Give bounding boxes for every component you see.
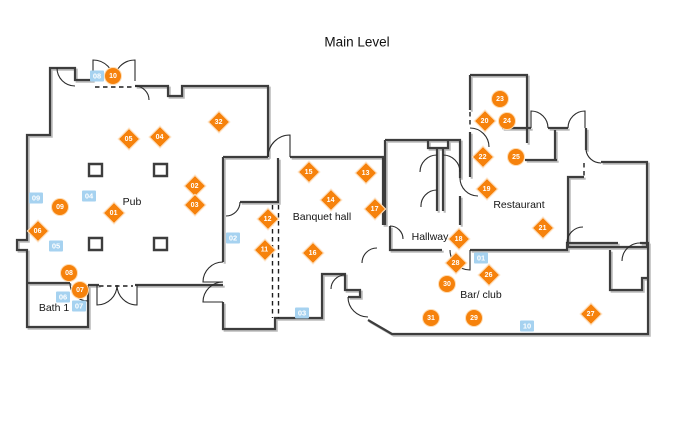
marker-label: 20 (481, 117, 489, 124)
marker-label: 01 (110, 209, 118, 216)
room-label-bar-club: Bar/ club (460, 289, 501, 301)
marker-label: 10 (523, 322, 531, 330)
marker-label: 29 (470, 315, 478, 322)
marker-label: 15 (305, 168, 313, 175)
marker-label: 07 (76, 287, 84, 294)
marker-label: 28 (452, 259, 460, 266)
marker-label: 02 (229, 234, 237, 242)
marker-label: 18 (455, 235, 463, 242)
device-marker-circle-29[interactable]: 29 (465, 309, 483, 327)
marker-label: 02 (191, 182, 199, 189)
marker-label: 22 (479, 153, 487, 160)
device-marker-square-02[interactable]: 02 (226, 233, 240, 244)
page-title: Main Level (324, 35, 389, 50)
marker-label: 31 (427, 315, 435, 322)
marker-label: 01 (477, 254, 485, 262)
device-marker-circle-30[interactable]: 30 (438, 275, 456, 293)
marker-label: 25 (512, 154, 520, 161)
marker-label: 26 (485, 271, 493, 278)
marker-label: 09 (56, 204, 64, 211)
room-label-bath-1: Bath 1 (39, 302, 69, 314)
device-marker-circle-23[interactable]: 23 (491, 90, 509, 108)
marker-label: 27 (587, 310, 595, 317)
device-marker-square-06[interactable]: 06 (56, 292, 70, 303)
room-label-hallway: Hallway (412, 231, 449, 243)
device-marker-square-05[interactable]: 05 (49, 241, 63, 252)
room-label-banquet-hall: Banquet hall (293, 211, 351, 223)
device-marker-square-01[interactable]: 01 (474, 253, 488, 264)
floorplan-canvas: Main Level PubBath 1Banquet hallHallwayR… (0, 0, 682, 421)
marker-label: 16 (309, 249, 317, 256)
marker-label: 04 (156, 133, 164, 140)
marker-label: 30 (443, 281, 451, 288)
marker-label: 08 (65, 270, 73, 277)
device-marker-square-03[interactable]: 03 (295, 308, 309, 319)
device-marker-circle-25[interactable]: 25 (507, 148, 525, 166)
marker-label: 06 (59, 293, 67, 301)
device-marker-square-04[interactable]: 04 (82, 191, 96, 202)
marker-label: 07 (75, 302, 83, 310)
device-marker-circle-31[interactable]: 31 (422, 309, 440, 327)
device-marker-circle-09[interactable]: 09 (51, 198, 69, 216)
marker-label: 14 (327, 196, 335, 203)
device-marker-circle-07[interactable]: 07 (71, 281, 89, 299)
marker-label: 17 (371, 205, 379, 212)
room-label-restaurant: Restaurant (493, 199, 544, 211)
marker-label: 08 (93, 72, 101, 80)
marker-label: 03 (298, 309, 306, 317)
marker-label: 05 (125, 135, 133, 142)
device-marker-circle-24[interactable]: 24 (498, 112, 516, 130)
marker-label: 24 (503, 118, 511, 125)
marker-label: 05 (52, 242, 60, 250)
device-marker-square-07[interactable]: 07 (72, 301, 86, 312)
marker-label: 03 (191, 201, 199, 208)
marker-label: 10 (109, 73, 117, 80)
device-marker-circle-10[interactable]: 10 (104, 67, 122, 85)
marker-label: 23 (496, 96, 504, 103)
marker-label: 04 (85, 192, 93, 200)
device-marker-square-08[interactable]: 08 (90, 71, 104, 82)
device-marker-square-10[interactable]: 10 (520, 321, 534, 332)
door-swing-arcs (57, 60, 640, 317)
marker-label: 11 (261, 247, 268, 254)
marker-label: 32 (215, 118, 223, 125)
marker-label: 13 (362, 169, 370, 176)
marker-label: 06 (34, 227, 42, 234)
room-label-pub: Pub (123, 196, 142, 208)
device-marker-circle-08[interactable]: 08 (60, 264, 78, 282)
marker-label: 19 (483, 185, 491, 192)
marker-label: 09 (32, 194, 40, 202)
device-marker-square-09[interactable]: 09 (29, 193, 43, 204)
marker-label: 12 (264, 215, 272, 222)
marker-label: 21 (539, 224, 547, 231)
